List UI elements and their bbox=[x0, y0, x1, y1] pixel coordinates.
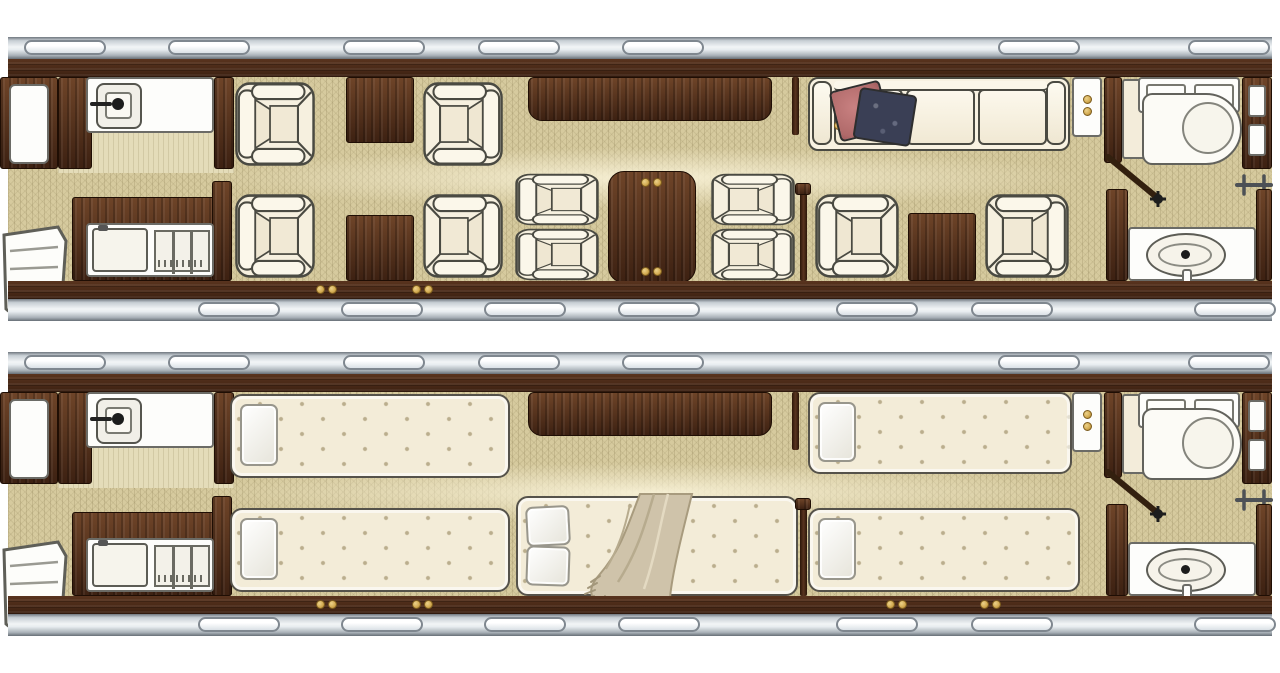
galley-end-wall bbox=[212, 496, 232, 596]
lav-door-frame bbox=[1104, 392, 1122, 478]
floorplan-day-configuration bbox=[8, 37, 1272, 321]
cabin-window bbox=[971, 617, 1053, 632]
forward-closet bbox=[0, 392, 58, 484]
cabin-window bbox=[618, 302, 700, 317]
single-bed bbox=[230, 394, 510, 478]
bed-pillow bbox=[818, 518, 856, 580]
vanity-wall bbox=[1106, 504, 1128, 596]
cabin-wall-top bbox=[8, 59, 1272, 77]
lavatory-counter bbox=[86, 77, 214, 133]
conference-seat bbox=[514, 173, 600, 226]
aft-wardrobe bbox=[1242, 77, 1272, 169]
cabin-window bbox=[971, 302, 1053, 317]
divider-knob bbox=[795, 498, 811, 510]
cupholder-brass-icon bbox=[1083, 410, 1092, 431]
club-chair bbox=[814, 193, 900, 279]
floorplan-night-configuration bbox=[8, 352, 1272, 636]
vanity-counter bbox=[1128, 227, 1256, 281]
conference-seat bbox=[710, 173, 796, 226]
cabin-window bbox=[622, 40, 704, 55]
cabin-window bbox=[168, 355, 250, 370]
forward-closet bbox=[0, 77, 58, 169]
conference-seat bbox=[514, 228, 600, 281]
galley-counter bbox=[86, 538, 214, 592]
latch-brass bbox=[980, 600, 1001, 609]
cabin-wall-bottom bbox=[8, 596, 1272, 614]
divider-knob bbox=[795, 183, 811, 195]
credenza bbox=[528, 392, 772, 436]
conference-seat bbox=[710, 228, 796, 281]
latch-brass bbox=[316, 285, 337, 294]
divan-end-table bbox=[1072, 77, 1102, 137]
cabin-window bbox=[478, 355, 560, 370]
cabin-window bbox=[198, 617, 280, 632]
aft-wall bbox=[1256, 504, 1272, 596]
latch-brass bbox=[412, 285, 433, 294]
cabin-window bbox=[341, 302, 423, 317]
bed-pillow bbox=[525, 505, 571, 547]
cabin-window bbox=[1188, 40, 1270, 55]
divan-sofa bbox=[808, 77, 1070, 151]
partition-wall bbox=[214, 77, 234, 169]
aft-wardrobe bbox=[1242, 392, 1272, 484]
cabin-interior-day bbox=[8, 77, 1272, 281]
double-bed bbox=[516, 496, 798, 596]
divider-pole bbox=[792, 77, 799, 135]
cabin-wall-top bbox=[8, 374, 1272, 392]
latch-brass bbox=[886, 600, 907, 609]
aft-wall bbox=[1256, 189, 1272, 281]
cabin-window bbox=[24, 40, 106, 55]
side-table bbox=[346, 77, 414, 143]
bed-pillow bbox=[818, 402, 856, 462]
cabin-window bbox=[24, 355, 106, 370]
fuselage-band-top bbox=[8, 37, 1272, 59]
galley-end-wall bbox=[212, 181, 232, 281]
aft-side-cabinet bbox=[908, 213, 976, 281]
closet-shelf bbox=[9, 399, 49, 479]
divider-pole bbox=[800, 504, 807, 596]
throw-pillow-patterned bbox=[852, 87, 917, 147]
galley-oven bbox=[92, 228, 148, 272]
cabin-wall-bottom bbox=[8, 281, 1272, 299]
lavatory-counter bbox=[86, 392, 214, 448]
bed-pillow bbox=[240, 518, 278, 580]
divan-cushion bbox=[978, 89, 1047, 145]
cabin-window bbox=[1194, 617, 1276, 632]
cabin-window bbox=[998, 355, 1080, 370]
aircraft-floorplans-image bbox=[0, 0, 1280, 673]
cabin-window bbox=[618, 617, 700, 632]
galley-racks bbox=[154, 545, 210, 587]
fuselage-band-top bbox=[8, 352, 1272, 374]
club-chair bbox=[422, 193, 504, 279]
bed-pillow bbox=[240, 404, 278, 466]
divider-pole bbox=[800, 189, 807, 281]
cabin-window bbox=[168, 40, 250, 55]
single-bed bbox=[230, 508, 510, 592]
conference-table bbox=[608, 171, 696, 283]
credenza bbox=[528, 77, 772, 121]
club-chair bbox=[984, 193, 1070, 279]
cabin-window bbox=[836, 617, 918, 632]
fuselage-band-bottom bbox=[8, 614, 1272, 636]
lav-door-frame bbox=[1104, 77, 1122, 163]
vanity-counter bbox=[1128, 542, 1256, 596]
club-chair bbox=[422, 81, 504, 167]
divan-arm bbox=[1046, 81, 1066, 145]
table-hinge-brass bbox=[641, 178, 662, 187]
cabin-window bbox=[484, 617, 566, 632]
cabin-window bbox=[343, 40, 425, 55]
divan-end-table bbox=[1072, 392, 1102, 452]
side-table bbox=[346, 215, 414, 281]
table-hinge-brass bbox=[641, 267, 662, 276]
cupholder-brass-icon bbox=[1083, 95, 1092, 116]
cabin-window bbox=[1188, 355, 1270, 370]
club-chair bbox=[234, 81, 316, 167]
lavatory-sink-icon bbox=[96, 398, 142, 444]
single-bed bbox=[808, 508, 1080, 592]
lavatory-sink-icon bbox=[96, 83, 142, 129]
blanket bbox=[570, 492, 730, 604]
cabin-window bbox=[1194, 302, 1276, 317]
latch-brass bbox=[412, 600, 433, 609]
galley-oven bbox=[92, 543, 148, 587]
divan-arm bbox=[812, 81, 832, 145]
cabin-window bbox=[484, 302, 566, 317]
cabin-interior-night bbox=[8, 392, 1272, 596]
fuselage-band-bottom bbox=[8, 299, 1272, 321]
galley-counter bbox=[86, 223, 214, 277]
vanity-wall bbox=[1106, 189, 1128, 281]
cabin-window bbox=[198, 302, 280, 317]
club-chair bbox=[234, 193, 316, 279]
cabin-window bbox=[343, 355, 425, 370]
cabin-window bbox=[836, 302, 918, 317]
cabin-window bbox=[622, 355, 704, 370]
closet-shelf bbox=[9, 84, 49, 164]
cabin-window bbox=[478, 40, 560, 55]
cabin-window bbox=[998, 40, 1080, 55]
divider-pole bbox=[792, 392, 799, 450]
bed-pillow bbox=[525, 545, 570, 587]
galley-racks bbox=[154, 230, 210, 272]
latch-brass bbox=[316, 600, 337, 609]
cabin-window bbox=[341, 617, 423, 632]
single-bed bbox=[808, 392, 1072, 474]
